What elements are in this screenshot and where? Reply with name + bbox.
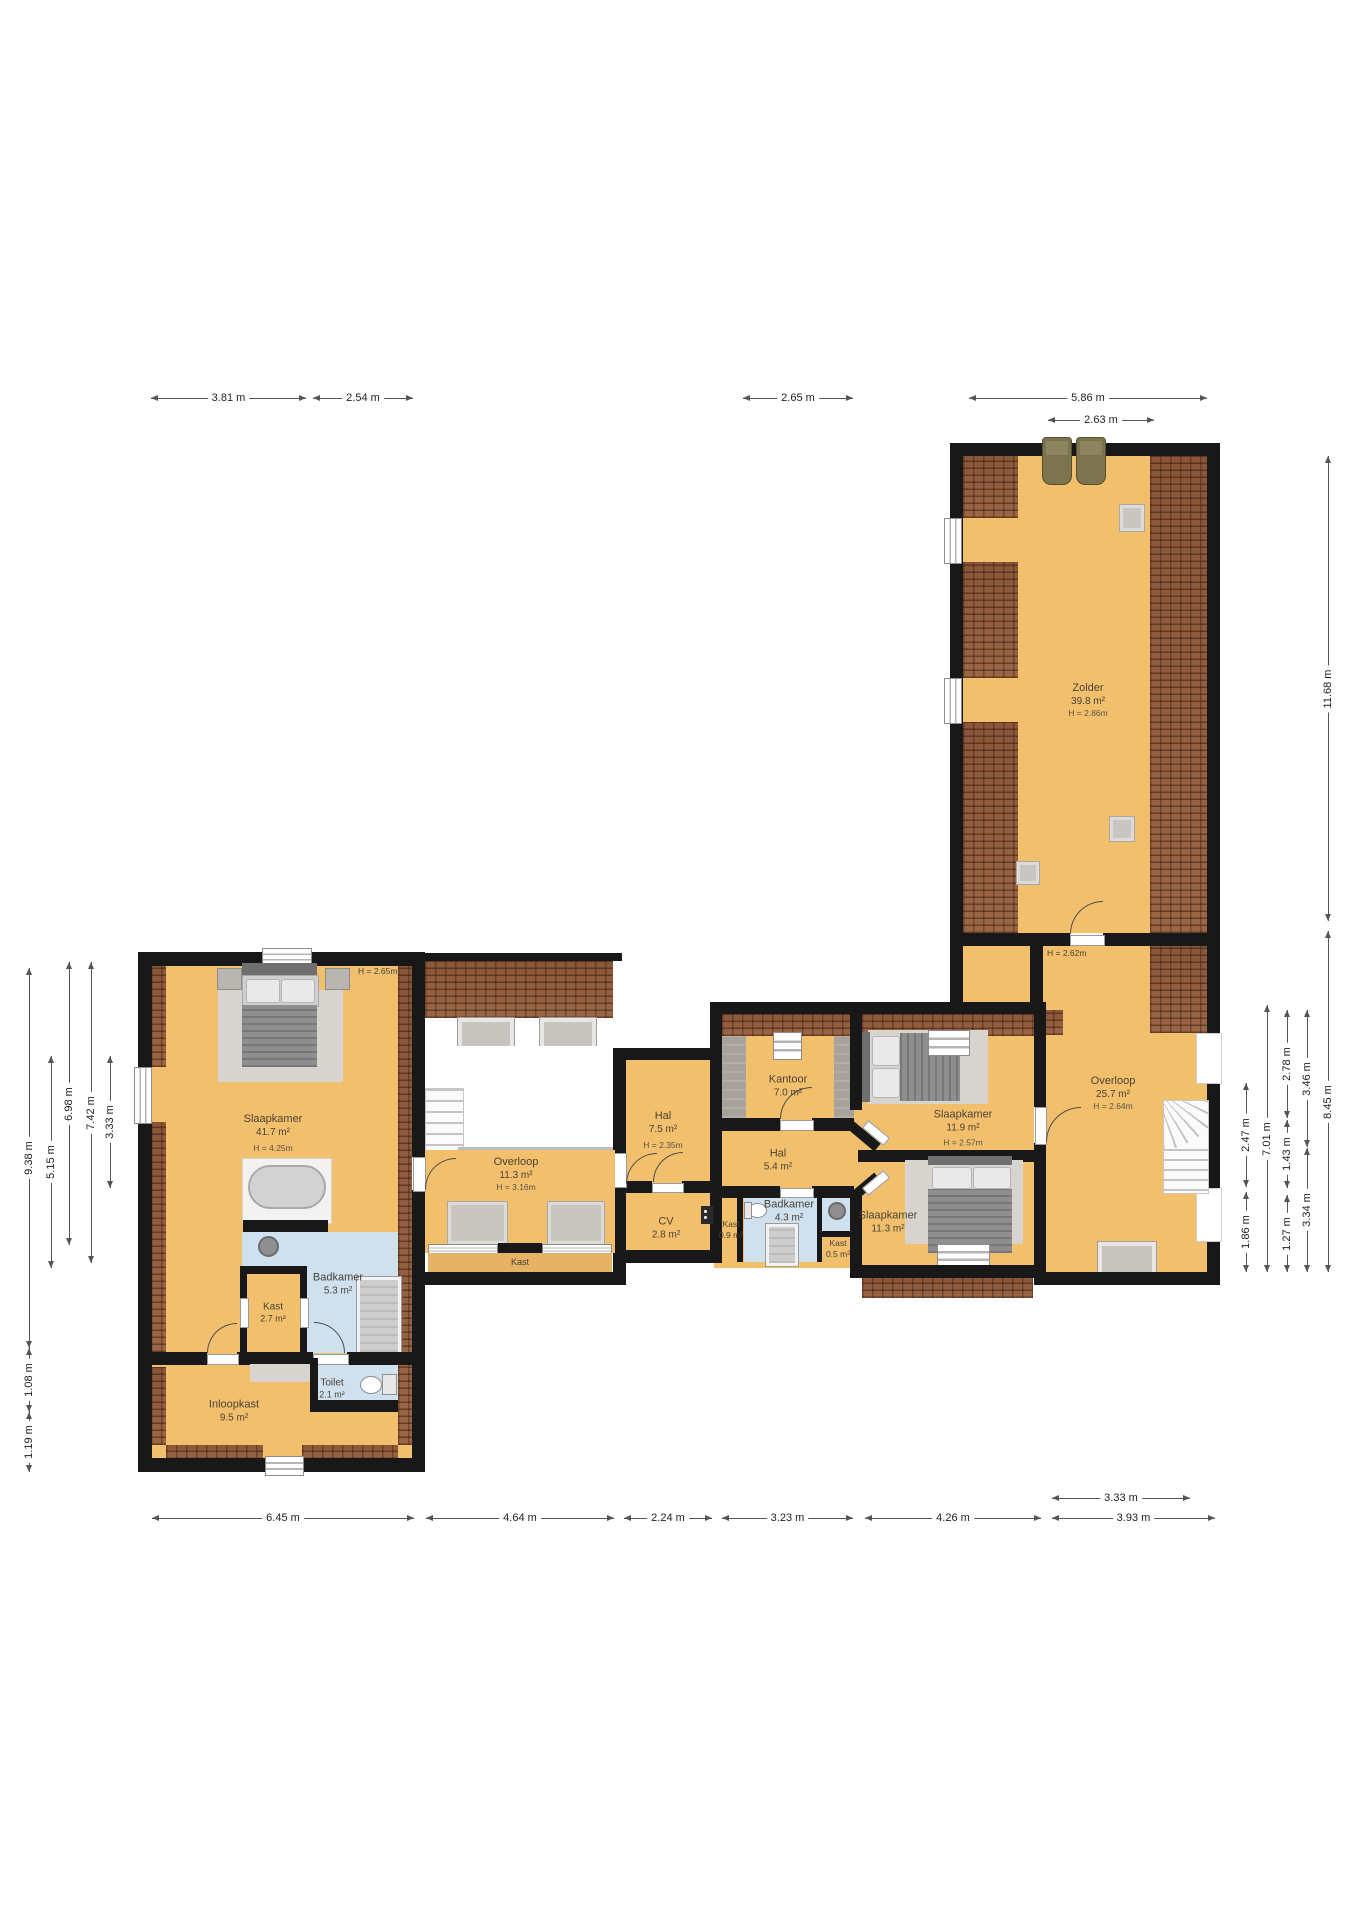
cv-boiler-icon	[701, 1206, 713, 1224]
roof-slope-left-2	[151, 1122, 166, 1352]
pillow-icon	[872, 1036, 900, 1066]
bathtub-icon	[248, 1165, 326, 1209]
roof-slope-bottom-b	[302, 1445, 398, 1459]
kast27-wall-left-b	[240, 1326, 247, 1353]
room-label-cv: CV 2.8 m²	[652, 1214, 680, 1241]
bed-headboard	[928, 1156, 1012, 1165]
room-label-hal75: Hal 7.5 m² H = 2.35m	[643, 1109, 682, 1151]
zolder-skylight-1	[1120, 505, 1144, 531]
zolder-window-left-1	[944, 518, 962, 564]
zolder-skylight-3	[1017, 862, 1039, 884]
dim-top-254: 2.54 m	[313, 392, 413, 404]
dim-right-143: 1.43 m	[1281, 1120, 1293, 1188]
dim-top-586: 5.86 m	[969, 392, 1207, 404]
badkamer43-wall-top-b	[812, 1186, 854, 1198]
toilet-wall-bottom	[310, 1400, 398, 1412]
divider-wall-a	[151, 1352, 207, 1365]
hal-cv-wall-b	[682, 1181, 710, 1193]
hal75-wall-top	[613, 1048, 722, 1060]
height-note-262: H = 2.62m	[1047, 948, 1086, 958]
kantoor-door	[780, 1120, 814, 1131]
roof-slope-zolder-left-3	[963, 722, 1018, 933]
kast27-wall-right-b	[300, 1326, 307, 1353]
room-label-slaapkamer119: Slaapkamer 11.9 m² H = 2.57m	[934, 1107, 993, 1148]
kantoor-window	[773, 1032, 802, 1060]
badkamer43-wall-top-a	[714, 1186, 780, 1198]
pillow-icon	[932, 1167, 972, 1189]
inloopkast-window-bottom	[265, 1456, 304, 1476]
slaapkamer-groot-window-left	[134, 1067, 152, 1124]
kantoor-sloped-left	[722, 1036, 746, 1118]
roof-slope-overloop-right	[1150, 946, 1207, 1033]
dim-left-938: 9.38 m	[23, 968, 35, 1348]
roof-slope-bottom-a	[166, 1445, 263, 1459]
staircase-main	[1163, 1100, 1209, 1194]
dim-right-278: 2.78 m	[1281, 1010, 1293, 1118]
overloop-links-bottom-wall	[425, 1272, 626, 1285]
toilet-cistern-icon	[744, 1202, 752, 1219]
dim-bottom-224: 2.24 m	[624, 1512, 712, 1524]
washbasin-icon	[258, 1236, 279, 1257]
overloop-links-roofwindow-2	[548, 1202, 604, 1244]
dim-right-334: 3.34 m	[1301, 1148, 1313, 1272]
dim-right-701: 7.01 m	[1261, 1005, 1273, 1272]
leftwing-wall-right-a	[412, 952, 425, 1157]
room-label-kantoor: Kantoor 7.0 m²	[769, 1072, 808, 1099]
hal75-left-wall-a	[613, 1060, 626, 1153]
roof-slope-zolder-right	[1150, 456, 1207, 933]
dim-bottom-323: 3.23 m	[722, 1512, 853, 1524]
kantoor-wall-bottom-a	[714, 1118, 780, 1131]
dim-bottom-426: 4.26 m	[865, 1512, 1041, 1524]
zolder-door	[1070, 935, 1105, 946]
bed-blanket	[242, 1005, 317, 1067]
chair-icon	[1042, 437, 1072, 485]
dim-bottom-464: 4.64 m	[426, 1512, 614, 1524]
dim-right-186: 1.86 m	[1240, 1192, 1252, 1272]
kast27-door-right	[300, 1298, 309, 1328]
room-label-kast05: Kast 0.5 m²	[826, 1238, 850, 1260]
roof-slope-left-3	[151, 1367, 166, 1445]
dim-left-108: 1.08 m	[23, 1348, 35, 1412]
nightstand-icon	[325, 968, 350, 990]
overloop-links-stub	[498, 1243, 542, 1253]
room-label-overloop-rechts: Overloop 25.7 m² H = 2.64m	[1091, 1074, 1136, 1112]
room-label-slaapkamer113: Slaapkamer 11.3 m²	[859, 1208, 918, 1235]
room-label-kast27: Kast 2.7 m²	[260, 1301, 286, 1326]
roof-band-overloop-links	[425, 961, 613, 1018]
room-label-kast-wand: Kast	[511, 1257, 529, 1269]
bedrooms-right-wall-b	[1034, 1143, 1046, 1285]
dim-left-515: 5.15 m	[45, 1056, 57, 1268]
kast27-wall-right-a	[300, 1266, 307, 1298]
middle-wing-top-wall	[710, 1002, 1046, 1014]
roof-slope-zolder-left-1	[963, 456, 1018, 518]
overloop-links-topline	[425, 953, 622, 961]
bedrooms-right-wall-a	[1034, 1002, 1046, 1107]
bed-headboard	[862, 1032, 870, 1102]
dim-bottom-333: 3.33 m	[1052, 1492, 1190, 1504]
zolder-skylight-2	[1110, 817, 1134, 841]
room-label-inloopkast: Inloopkast 9.5 m²	[209, 1397, 259, 1424]
room-label-overloop-links: Overloop 11.3 m² H = 3.16m	[494, 1155, 539, 1193]
dim-top-263: 2.63 m	[1048, 414, 1154, 426]
right-wall-notch-1	[1196, 1033, 1222, 1084]
room-label-zolder: Zolder 39.8 m² H = 2.86m	[1068, 681, 1107, 719]
kast27-wall-top	[240, 1266, 307, 1274]
zolder-wall-right	[1207, 443, 1220, 946]
leftwing-wall-right-b	[412, 1190, 425, 1472]
slaapkamer119-window	[928, 1030, 970, 1056]
tub-wall	[243, 1220, 328, 1232]
nightstand-icon	[217, 968, 242, 990]
badkamer53-door	[313, 1354, 349, 1365]
room-label-kast09: Kast 0.9 m²	[719, 1219, 743, 1241]
kast27-door-left	[240, 1298, 249, 1328]
room-label-badkamer43: Badkamer 4.3 m²	[764, 1197, 814, 1224]
wing-bottom-wall	[1034, 1272, 1220, 1285]
bedrooms-left-wall-a	[850, 1014, 862, 1110]
room-label-hal54: Hal 5.4 m²	[764, 1146, 792, 1173]
dim-left-742: 7.42 m	[85, 962, 97, 1263]
dim-right-845: 8.45 m	[1322, 931, 1334, 1272]
dim-top-381: 3.81 m	[151, 392, 306, 404]
overloop-links-roofwindow-1	[448, 1202, 507, 1244]
staircase-vide	[425, 1088, 464, 1152]
height-note-265: H = 2.65m	[358, 966, 397, 976]
bed-headboard	[242, 963, 317, 975]
shower-cabinet-icon	[357, 1277, 401, 1355]
dim-left-333: 3.33 m	[104, 1056, 116, 1188]
toilet-icon	[360, 1376, 382, 1394]
doormat	[250, 1364, 310, 1382]
dim-left-698: 6.98 m	[63, 962, 75, 1245]
room-label-badkamer53: Badkamer 5.3 m²	[313, 1270, 363, 1297]
leftwing-wall-left	[138, 952, 152, 1472]
dim-right-1168: 11.68 m	[1322, 456, 1334, 921]
kast27-wall-left-a	[240, 1266, 247, 1298]
dim-bottom-393: 3.93 m	[1052, 1512, 1215, 1524]
inloopkast-door	[207, 1354, 239, 1365]
dim-right-346: 3.46 m	[1301, 1010, 1313, 1147]
toilet-cistern-icon	[382, 1374, 397, 1395]
bedrooms-bottom-wall	[850, 1265, 1046, 1278]
pillow-icon	[973, 1167, 1011, 1189]
cv-door	[652, 1183, 684, 1193]
divider-wall-c	[347, 1352, 412, 1365]
alcove-wall-stub	[1030, 946, 1043, 1007]
dim-left-119: 1.19 m	[23, 1412, 35, 1472]
zolder-wall-bottom-a	[950, 933, 1070, 946]
pillow-icon	[281, 979, 315, 1003]
washbasin-icon	[828, 1202, 846, 1220]
room-label-toilet: Toilet 2.1 m²	[319, 1377, 345, 1402]
chair-icon	[1076, 437, 1106, 485]
dim-bottom-645: 6.45 m	[152, 1512, 414, 1524]
right-wall-notch-2	[1196, 1188, 1222, 1242]
roof-eave-bedrooms	[862, 1278, 1033, 1298]
hal75-wall-bottom	[613, 1250, 722, 1263]
shower-icon	[766, 1224, 798, 1266]
roof-slope-left-1	[151, 965, 166, 1067]
room-label-slaapkamer-groot: Slaapkamer 41.7 m² H = 4.25m	[244, 1112, 303, 1154]
pillow-icon	[246, 979, 280, 1003]
dim-right-247: 2.47 m	[1240, 1083, 1252, 1187]
zolder-window-left-2	[944, 678, 962, 724]
roof-slope-overloop-corner	[1043, 1010, 1063, 1035]
pillow-icon	[872, 1068, 900, 1098]
roof-slope-zolder-left-2	[963, 562, 1018, 678]
zolder-wall-bottom-b	[1103, 933, 1220, 946]
roof-slope-right-band	[398, 965, 412, 1445]
dim-right-127: 1.27 m	[1281, 1195, 1293, 1272]
floor-plan: Zolder 39.8 m² H = 2.86m H = 2.62m H = 2…	[0, 0, 1358, 1920]
dim-top-265: 2.65 m	[743, 392, 853, 404]
